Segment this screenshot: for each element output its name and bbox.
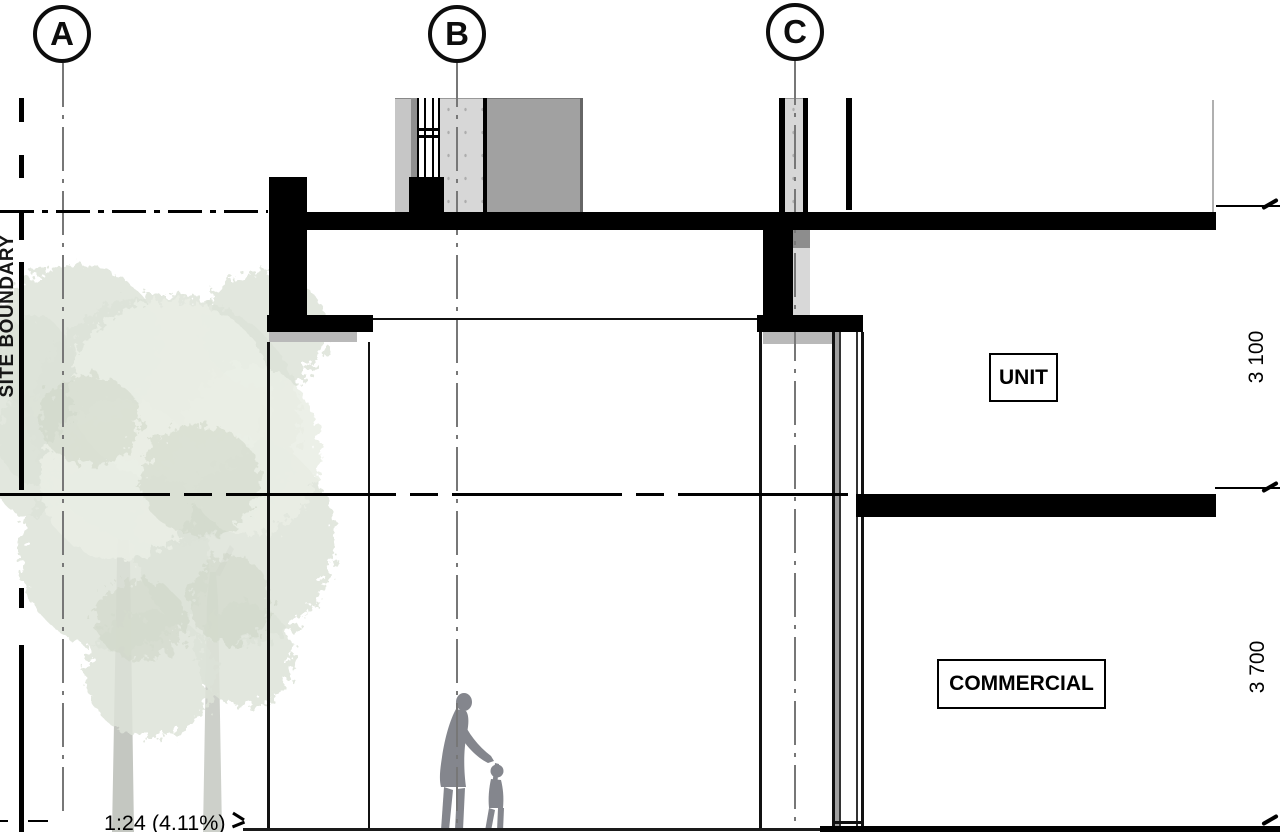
- level-line-first-floor: [0, 493, 856, 496]
- unit-room-label-text: UNIT: [999, 366, 1048, 390]
- grid-bubble-b-label: B: [445, 15, 469, 53]
- stud-blocking: [419, 135, 438, 138]
- site-boundary-line: [19, 212, 24, 240]
- shopfront-mullion: [839, 332, 841, 830]
- edge-beam-c: [757, 315, 863, 332]
- slope-annotation: 1:24 (4.11%): [104, 811, 226, 832]
- grid-bubble-c-label: C: [783, 13, 807, 51]
- site-boundary-label: SITE BOUNDARY: [0, 136, 19, 496]
- site-boundary-line: [19, 98, 24, 122]
- pier-outer-line: [267, 342, 270, 830]
- stud-blocking: [419, 128, 438, 131]
- commercial-room-label: COMMERCIAL: [937, 659, 1106, 709]
- shopfront-mullion: [861, 332, 864, 830]
- dim-label-lower: 3 700: [1246, 622, 1270, 712]
- canopy-soffit-line: [373, 318, 757, 320]
- partition-wall-line: [846, 98, 852, 210]
- parapet-upstand: [269, 177, 307, 317]
- grid-bubble-c: C: [766, 3, 824, 61]
- slope-arrow-icon: [232, 813, 246, 827]
- shopfront-glass-line: [856, 332, 858, 830]
- wall-face-line: [779, 98, 785, 212]
- adult-silhouette: [440, 693, 494, 830]
- site-boundary-line: [19, 155, 24, 178]
- pier-inner-line: [368, 342, 371, 830]
- ground-dash: [28, 820, 48, 822]
- commercial-room-label-text: COMMERCIAL: [949, 672, 1094, 696]
- downstand-wall-c: [763, 230, 793, 316]
- dim-label-upper: 3 100: [1245, 312, 1269, 402]
- site-boundary-line: [19, 588, 24, 608]
- ground-dash: [0, 820, 8, 822]
- grid-bubble-b: B: [428, 5, 486, 63]
- wall-line-c-inner: [759, 332, 762, 830]
- ground-line: [243, 828, 820, 831]
- section-drawing-sheet: SITE BOUNDARY 3: [0, 0, 1280, 832]
- wall-edge-line: [483, 98, 487, 212]
- grid-line-b: [456, 63, 458, 830]
- grid-line-c: [794, 61, 796, 830]
- grid-bubble-a-label: A: [50, 15, 74, 53]
- child-silhouette: [485, 763, 504, 831]
- site-boundary-line: [19, 262, 24, 490]
- ground-slab-line: [820, 826, 1280, 832]
- edge-beam-left: [267, 315, 373, 332]
- site-boundary-line: [19, 645, 24, 832]
- wall-footing-b: [409, 177, 444, 214]
- first-floor-slab: [856, 494, 1216, 517]
- grid-line-a: [62, 63, 64, 813]
- grid-bubble-a: A: [33, 5, 91, 63]
- wall-face-line: [803, 98, 808, 212]
- shopfront-sill: [832, 821, 863, 824]
- unit-room-label: UNIT: [989, 353, 1058, 402]
- level-line-roof: [0, 210, 268, 213]
- roof-slab: [303, 212, 1216, 230]
